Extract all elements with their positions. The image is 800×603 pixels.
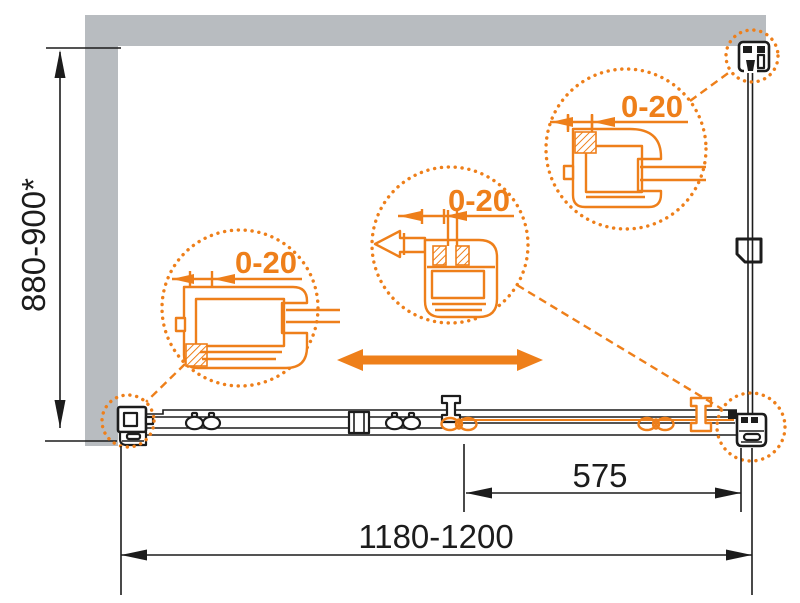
detail-dimension-middle: 0-20 — [398, 183, 514, 224]
top-wall-bracket — [739, 42, 769, 73]
detail-callout-middle: 0-20 — [372, 167, 722, 409]
ghost-door-roller — [691, 398, 711, 431]
height-dimension-label: 880-900* — [15, 178, 52, 312]
roller-pair-2 — [386, 413, 420, 429]
side-wall — [85, 15, 118, 446]
detail-left-label: 0-20 — [235, 245, 297, 280]
door-travel-label: 575 — [572, 457, 627, 494]
width-dimension-label: 1180-1200 — [358, 518, 513, 555]
glass-clamp-bracket — [349, 412, 369, 433]
glass-panel — [748, 70, 753, 417]
shower-door-installation-diagram: 880-900* — [0, 0, 800, 603]
roller-pair-1 — [186, 413, 220, 429]
detail-dimension-right: 0-20 — [550, 89, 688, 130]
right-end-profile — [728, 410, 766, 446]
ceiling-wall — [85, 15, 766, 46]
detail-right-label: 0-20 — [621, 89, 683, 124]
walls — [85, 15, 766, 446]
detail-callout-right: 0-20 — [546, 30, 785, 461]
callout-line-left — [146, 364, 185, 402]
detail-dimension-left: 0-20 — [172, 245, 302, 288]
callout-line-middle — [517, 285, 722, 409]
left-wall-profile — [118, 407, 153, 445]
door-handle — [737, 239, 761, 262]
detail-profile-right — [564, 114, 706, 207]
callout-line-right — [690, 71, 731, 101]
travel-arrow — [337, 349, 543, 371]
door-travel-dimension: 575 — [464, 444, 741, 512]
width-dimension: 1180-1200 — [121, 446, 752, 595]
detail-middle-label: 0-20 — [448, 183, 510, 218]
detail-profile-middle — [375, 210, 497, 317]
